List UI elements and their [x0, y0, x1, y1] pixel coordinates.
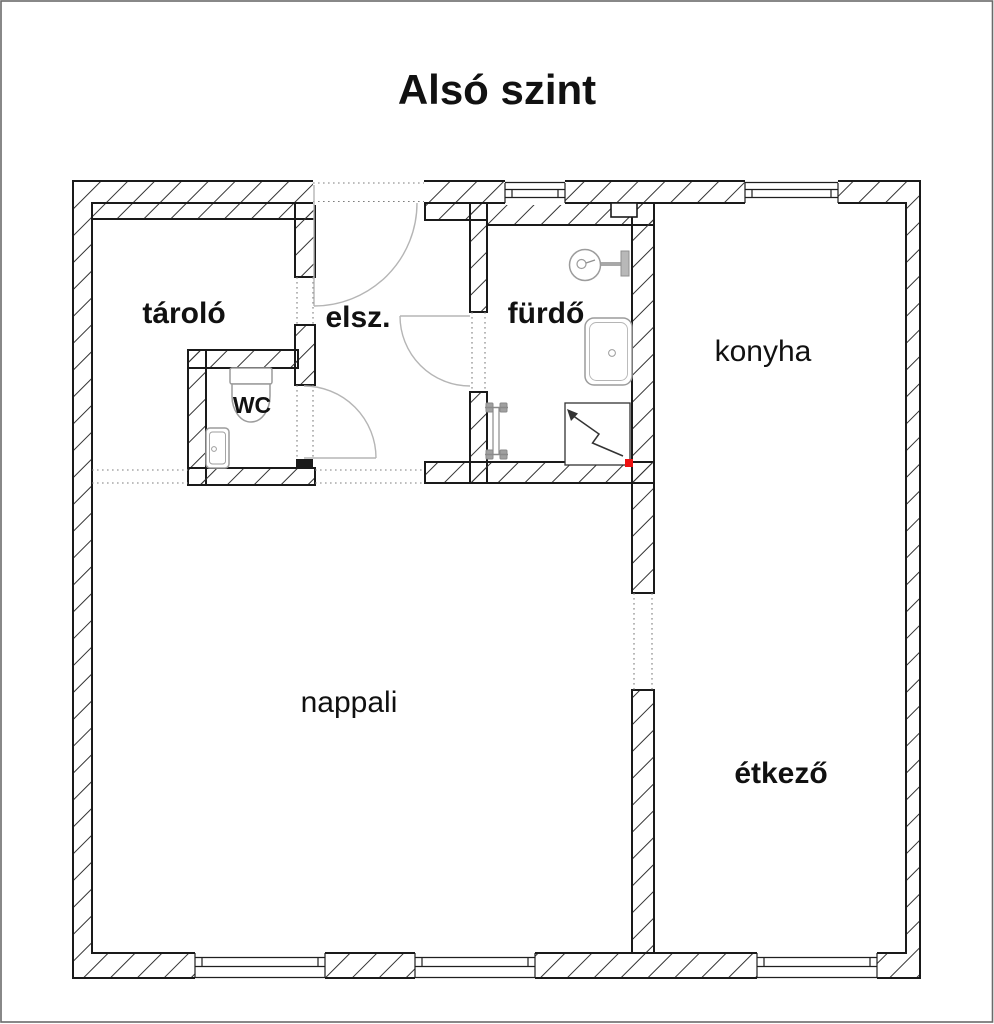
wall-tarolo-right-upper [295, 203, 315, 277]
wall-wc-bottom [188, 468, 315, 485]
red-marker [625, 459, 633, 467]
room-label-wc: WC [233, 392, 271, 418]
wall-etkezo-divider-lower [632, 690, 654, 953]
wall-tarolo-top-inner [92, 203, 315, 219]
plan-title: Alsó szint [398, 66, 596, 113]
canvas-background [0, 0, 994, 1024]
hand-basin-icon [206, 428, 229, 468]
wc-door-jamb [296, 459, 313, 469]
room-label-etkezo: étkező [734, 757, 827, 790]
wall-wc-left [188, 350, 206, 485]
wall-konyha-divider-upper [632, 203, 654, 593]
floor-plan-page: Alsó szint [0, 0, 994, 1024]
room-label-nappali: nappali [301, 686, 398, 719]
room-label-furdo: fürdő [508, 297, 585, 330]
room-label-elsz: elsz. [325, 301, 390, 334]
vent-shaft [611, 203, 637, 217]
floor-plan-drawing: Alsó szint [0, 0, 994, 1024]
wall-furdo-left-upper [470, 203, 487, 312]
bathtub-icon [585, 318, 632, 385]
room-label-konyha: konyha [715, 335, 812, 368]
shower-icon [565, 403, 630, 465]
room-label-tarolo: tároló [142, 297, 225, 330]
